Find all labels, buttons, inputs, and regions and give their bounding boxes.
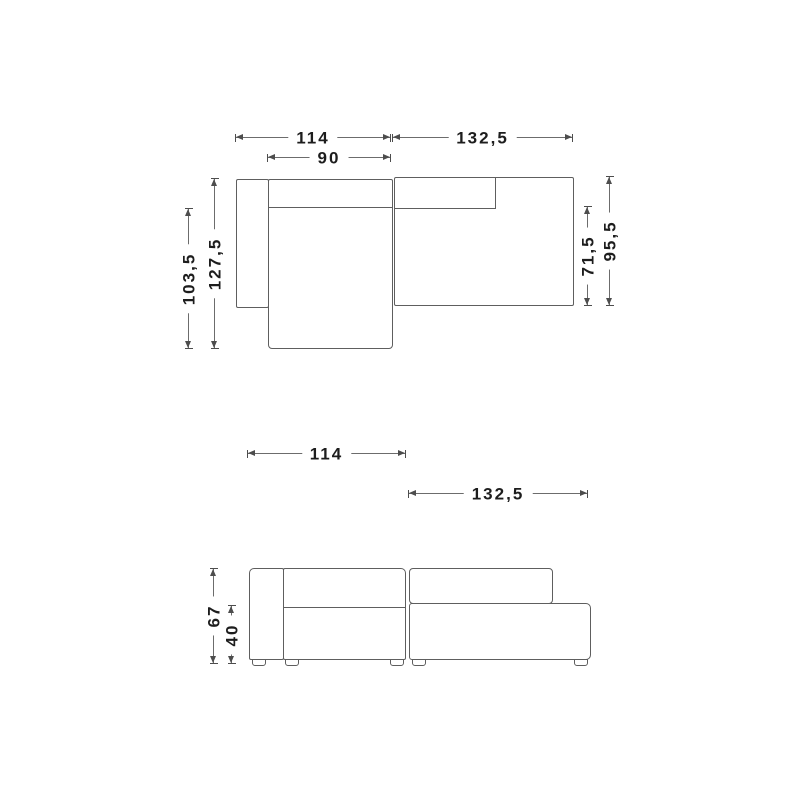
dim-arrowhead-up-icon bbox=[211, 179, 217, 186]
dim-front-height-seat: 40 bbox=[231, 606, 232, 663]
dim-arrowhead-right-icon bbox=[398, 450, 405, 456]
dim-label: 114 bbox=[302, 444, 351, 465]
dim-front-height-total: 67 bbox=[213, 569, 214, 663]
plan-chaise-module bbox=[268, 179, 393, 349]
front-left-seat-line bbox=[284, 607, 405, 608]
front-right-seat bbox=[409, 603, 591, 660]
front-foot bbox=[390, 659, 404, 666]
dim-arrowhead-down-icon bbox=[584, 298, 590, 305]
dim-label: 114 bbox=[288, 128, 337, 149]
dim-arrowhead-up-icon bbox=[185, 209, 191, 216]
plan-chaise-backrest-line bbox=[269, 207, 392, 208]
dim-tick bbox=[210, 663, 218, 664]
dim-arrowhead-up-icon bbox=[210, 569, 216, 576]
dim-arrowhead-up-icon bbox=[228, 606, 234, 613]
front-foot bbox=[285, 659, 299, 666]
plan-lounge-backrest-end-line bbox=[495, 178, 496, 208]
dim-arrowhead-left-icon bbox=[393, 134, 400, 140]
dim-plan-depth-inner-left: 103,5 bbox=[188, 209, 189, 348]
dim-tick bbox=[584, 305, 592, 306]
dim-label: 95,5 bbox=[600, 212, 621, 269]
front-armrest bbox=[249, 568, 284, 660]
dim-plan-width-right: 132,5 bbox=[393, 137, 572, 138]
dim-label: 71,5 bbox=[578, 227, 599, 284]
dim-label: 132,5 bbox=[464, 484, 533, 505]
dim-tick bbox=[390, 154, 391, 162]
dim-label: 127,5 bbox=[205, 229, 226, 298]
dim-arrowhead-right-icon bbox=[580, 490, 587, 496]
dim-arrowhead-left-icon bbox=[248, 450, 255, 456]
dim-front-width-right: 132,5 bbox=[409, 493, 587, 494]
dim-arrowhead-right-icon bbox=[383, 154, 390, 160]
dim-arrowhead-up-icon bbox=[584, 207, 590, 214]
dim-arrowhead-down-icon bbox=[211, 341, 217, 348]
plan-lounge-module bbox=[394, 177, 574, 306]
dim-tick bbox=[185, 348, 193, 349]
dim-arrowhead-right-icon bbox=[383, 134, 390, 140]
front-foot bbox=[252, 659, 266, 666]
dim-label: 40 bbox=[222, 615, 243, 654]
sofa-dimension-diagram: 114 132,5 90 103,5 bbox=[0, 0, 800, 800]
dim-arrowhead-right-icon bbox=[565, 134, 572, 140]
dim-arrowhead-left-icon bbox=[409, 490, 416, 496]
dim-arrowhead-up-icon bbox=[606, 177, 612, 184]
front-right-backrest bbox=[409, 568, 553, 604]
dim-arrowhead-left-icon bbox=[268, 154, 275, 160]
plan-armrest bbox=[236, 179, 269, 308]
dim-arrowhead-left-icon bbox=[236, 134, 243, 140]
front-foot bbox=[574, 659, 588, 666]
dim-arrowhead-down-icon bbox=[210, 656, 216, 663]
dim-arrowhead-down-icon bbox=[228, 656, 234, 663]
dim-plan-depth-total-left: 127,5 bbox=[214, 179, 215, 348]
dim-tick bbox=[228, 663, 236, 664]
dim-tick bbox=[405, 450, 406, 458]
dim-plan-seat-width: 90 bbox=[268, 157, 390, 158]
dim-tick bbox=[587, 490, 588, 498]
front-foot bbox=[412, 659, 426, 666]
dim-tick bbox=[606, 305, 614, 306]
dim-label: 132,5 bbox=[448, 128, 517, 149]
dim-arrowhead-down-icon bbox=[606, 298, 612, 305]
dim-plan-depth-total-right: 95,5 bbox=[609, 177, 610, 305]
dim-tick bbox=[211, 348, 219, 349]
dim-tick bbox=[572, 134, 573, 142]
dim-plan-depth-inner-right: 71,5 bbox=[587, 207, 588, 305]
dim-label: 103,5 bbox=[179, 244, 200, 313]
dim-front-width-left: 114 bbox=[248, 453, 405, 454]
dim-arrowhead-down-icon bbox=[185, 341, 191, 348]
front-left-module bbox=[283, 568, 406, 660]
dim-plan-width-left: 114 bbox=[236, 137, 390, 138]
dim-tick bbox=[390, 134, 391, 142]
plan-lounge-backrest-line bbox=[395, 208, 496, 209]
dim-label: 90 bbox=[310, 148, 349, 169]
